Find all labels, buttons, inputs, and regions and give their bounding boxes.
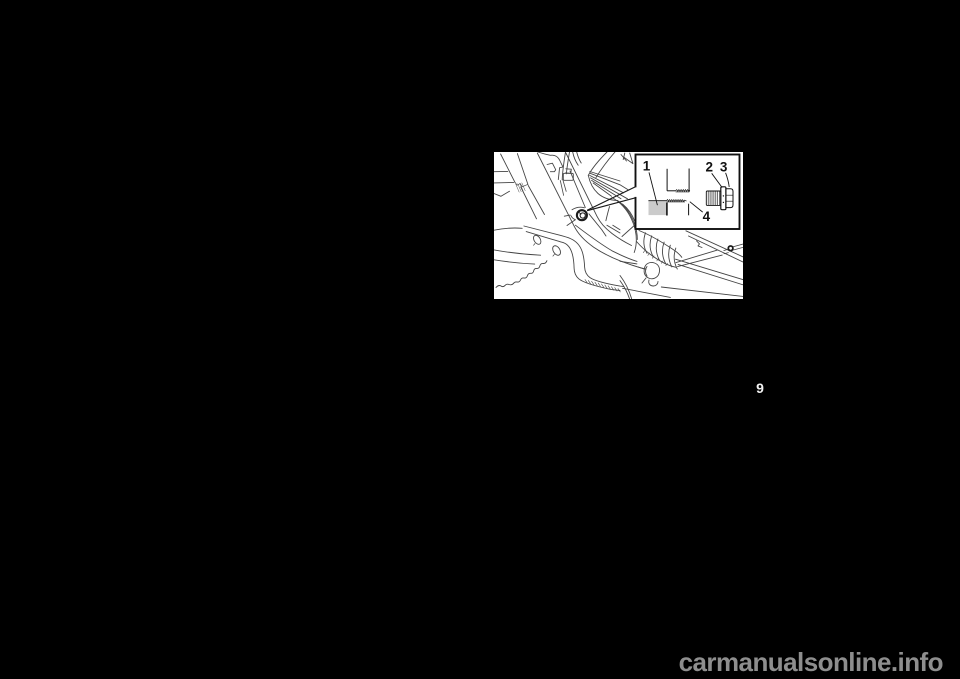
svg-text:3: 3: [720, 159, 728, 174]
svg-text:1: 1: [643, 159, 651, 174]
svg-text:4: 4: [703, 209, 711, 224]
svg-text:2: 2: [706, 159, 714, 174]
